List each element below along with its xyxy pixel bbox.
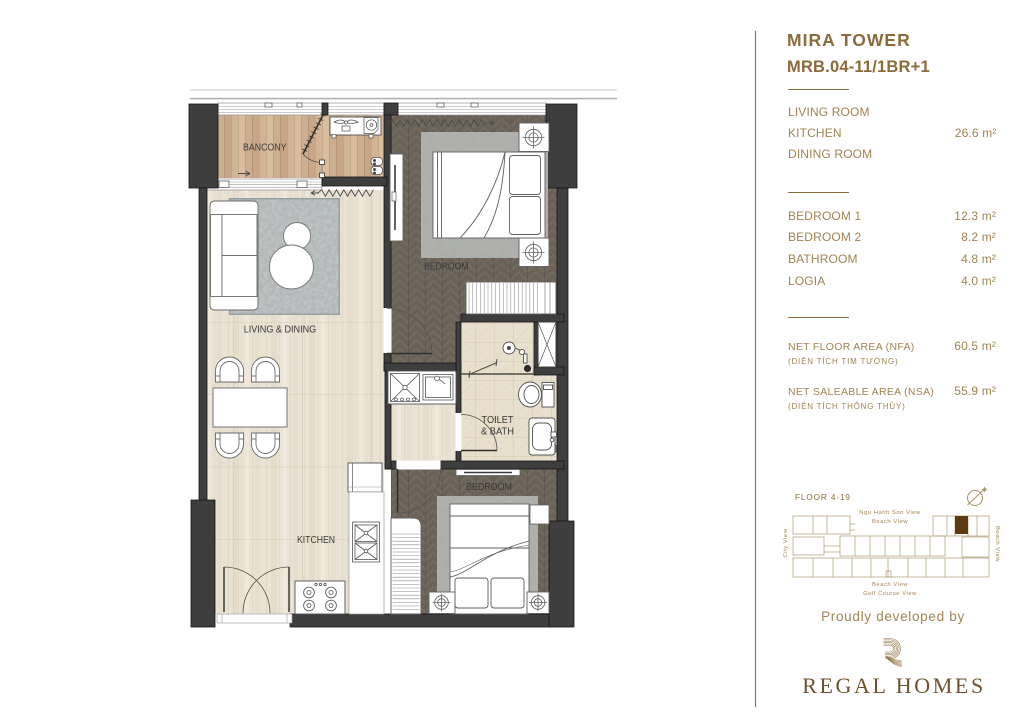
svg-text:LIVING ROOM: LIVING ROOM (788, 105, 870, 119)
svg-text:(DIỆN TÍCH TIM TƯỜNG): (DIỆN TÍCH TIM TƯỜNG) (788, 357, 899, 366)
svg-text:KITCHEN: KITCHEN (297, 535, 335, 546)
svg-text:BANCONY: BANCONY (243, 143, 287, 154)
svg-text:Beach View: Beach View (994, 526, 1000, 562)
svg-text:60.5 m²: 60.5 m² (954, 339, 996, 353)
svg-text:4.8 m²: 4.8 m² (961, 252, 996, 266)
svg-text:BEDROOM: BEDROOM (466, 482, 512, 493)
svg-text:LIVING & DINING: LIVING & DINING (244, 325, 317, 336)
svg-text:City View: City View (783, 528, 789, 557)
svg-text:REGAL HOMES: REGAL HOMES (802, 673, 986, 698)
svg-text:FLOOR 4-19: FLOOR 4-19 (795, 493, 851, 502)
svg-text:BEDROOM 1: BEDROOM 1 (788, 209, 862, 223)
svg-text:NET SALEABLE AREA (NSA): NET SALEABLE AREA (NSA) (788, 386, 934, 398)
svg-text:KITCHEN: KITCHEN (788, 126, 842, 140)
svg-text:4.0 m²: 4.0 m² (961, 274, 996, 288)
svg-text:BEDROOM: BEDROOM (424, 262, 469, 273)
svg-text:26.6 m²: 26.6 m² (955, 126, 997, 140)
svg-text:& BATH: & BATH (481, 427, 514, 438)
svg-text:Golf Course View: Golf Course View (863, 591, 917, 597)
svg-text:TOILET: TOILET (482, 415, 514, 426)
svg-text:Ngu Hanh Son View: Ngu Hanh Son View (859, 510, 921, 516)
svg-text:LOGIA: LOGIA (788, 274, 825, 288)
svg-text:MIRA TOWER: MIRA TOWER (787, 30, 911, 50)
svg-text:Beach View: Beach View (872, 519, 908, 525)
svg-text:DINING ROOM: DINING ROOM (788, 147, 872, 161)
svg-text:55.9 m²: 55.9 m² (954, 384, 996, 398)
svg-text:12.3 m²: 12.3 m² (954, 209, 996, 223)
svg-text:Beach View: Beach View (872, 582, 908, 588)
svg-text:NET FLOOR AREA (NFA): NET FLOOR AREA (NFA) (788, 341, 915, 353)
svg-text:8.2 m²: 8.2 m² (961, 230, 996, 244)
svg-text:(DIỆN TÍCH THÔNG THỦY): (DIỆN TÍCH THÔNG THỦY) (788, 402, 906, 411)
svg-text:MRB.04-11/1BR+1: MRB.04-11/1BR+1 (787, 58, 930, 76)
svg-text:Proudly developed by: Proudly developed by (821, 609, 965, 624)
svg-text:BATHROOM: BATHROOM (788, 252, 858, 266)
svg-text:BEDROOM 2: BEDROOM 2 (788, 230, 862, 244)
